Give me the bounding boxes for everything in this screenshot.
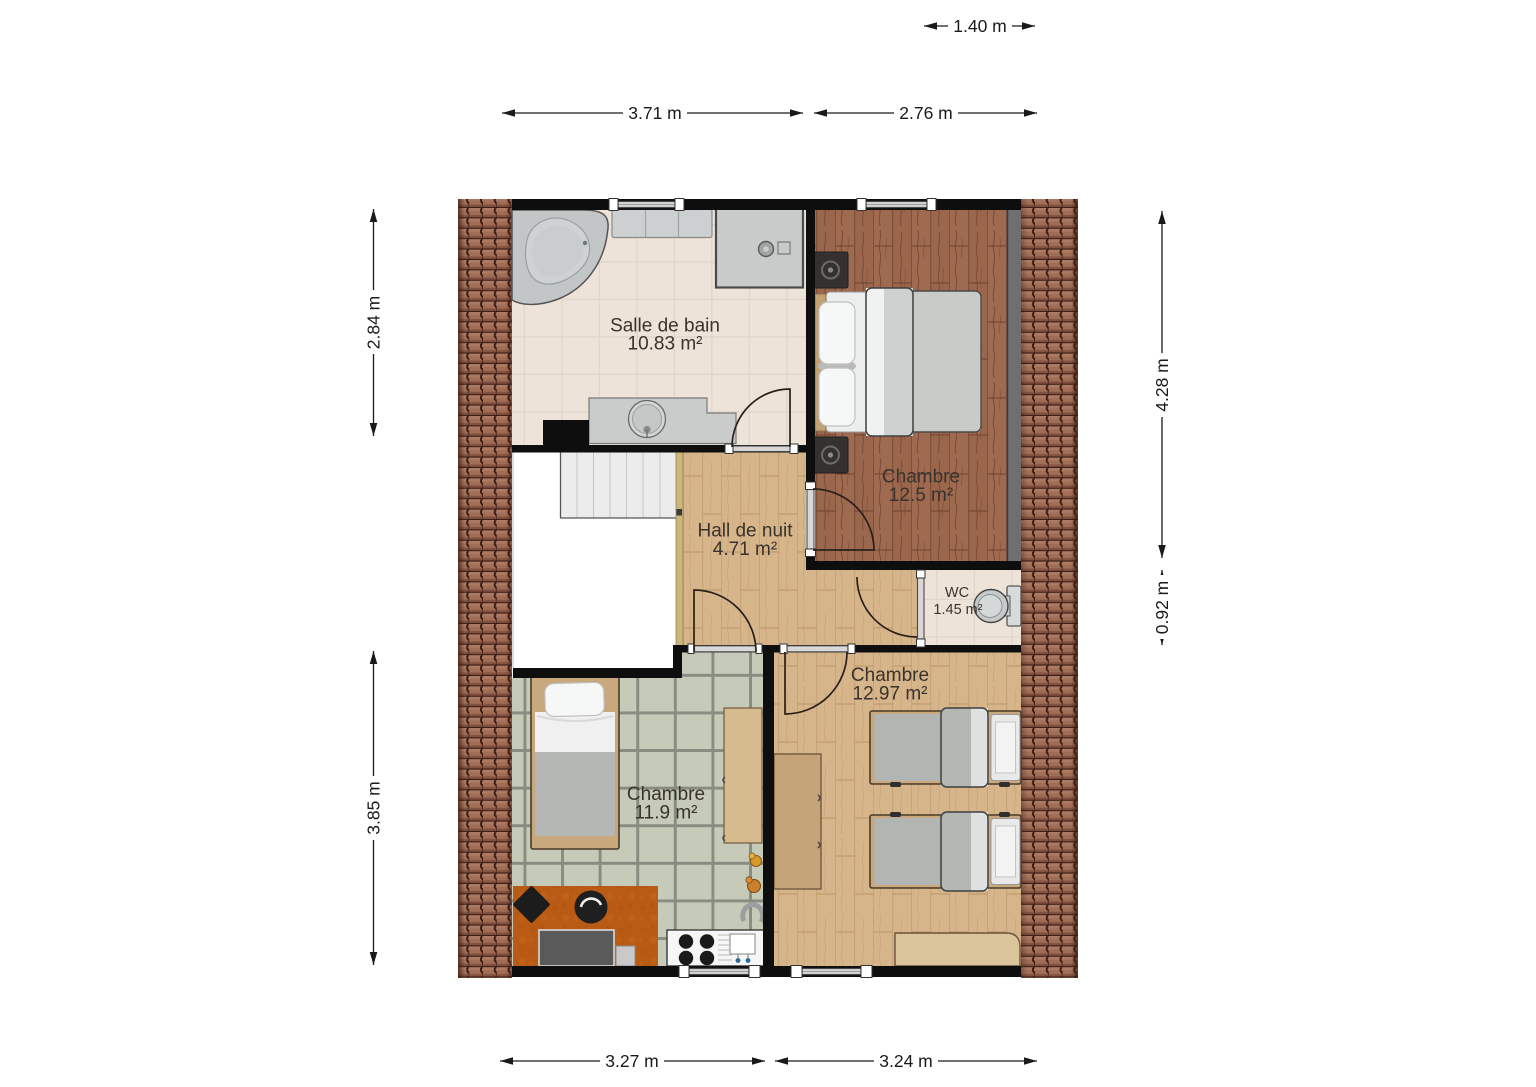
svg-text:1.40 m: 1.40 m [953,16,1007,36]
svg-text:12.5 m²: 12.5 m² [889,485,953,506]
svg-text:WC: WC [945,585,969,601]
svg-text:4.71 m²: 4.71 m² [713,539,777,560]
svg-text:3.71 m: 3.71 m [628,103,682,123]
svg-text:11.9 m²: 11.9 m² [634,803,697,824]
svg-text:0.92 m: 0.92 m [1152,581,1172,635]
svg-text:2.76 m: 2.76 m [899,103,953,123]
svg-text:3.24 m: 3.24 m [879,1051,933,1071]
svg-text:10.83 m²: 10.83 m² [628,334,703,355]
svg-text:1.45 m²: 1.45 m² [933,602,982,618]
svg-text:2.84 m: 2.84 m [364,296,384,350]
svg-text:3.27 m: 3.27 m [605,1051,659,1071]
svg-text:4.28 m: 4.28 m [1152,358,1172,412]
svg-text:12.97 m²: 12.97 m² [853,684,928,705]
svg-text:3.85 m: 3.85 m [364,781,384,835]
